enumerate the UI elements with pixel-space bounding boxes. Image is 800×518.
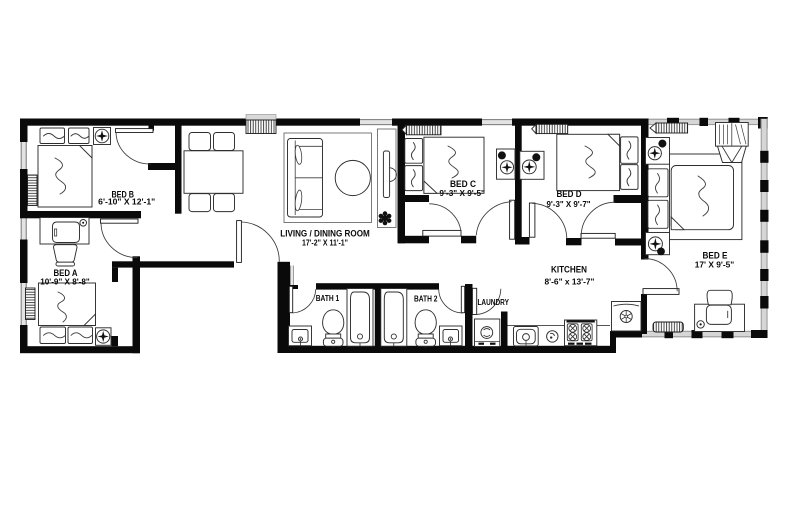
svg-text:BED E: BED E — [703, 251, 728, 261]
svg-text:17' X 9'-5": 17' X 9'-5" — [695, 261, 735, 270]
svg-text:LAUNDRY: LAUNDRY — [477, 298, 509, 307]
svg-text:LIVING / DINING ROOM: LIVING / DINING ROOM — [280, 228, 370, 238]
svg-text:9'-3" X 9'-5": 9'-3" X 9'-5" — [439, 189, 485, 198]
svg-text:BATH 1: BATH 1 — [316, 294, 340, 303]
svg-text:10'-9" X 8'-8": 10'-9" X 8'-8" — [40, 277, 90, 286]
svg-text:KITCHEN: KITCHEN — [551, 265, 587, 275]
svg-text:BED D: BED D — [557, 189, 582, 199]
svg-text:BATH 2: BATH 2 — [414, 294, 438, 303]
svg-text:6'-10" X 12'-1": 6'-10" X 12'-1" — [98, 197, 155, 206]
svg-text:8'-6" x 13'-7": 8'-6" x 13'-7" — [545, 278, 595, 287]
svg-text:BED C: BED C — [450, 179, 477, 189]
svg-text:17'-2" X 11'-1": 17'-2" X 11'-1" — [302, 239, 348, 248]
svg-text:9'-3" X 9'-7": 9'-3" X 9'-7" — [547, 200, 591, 209]
